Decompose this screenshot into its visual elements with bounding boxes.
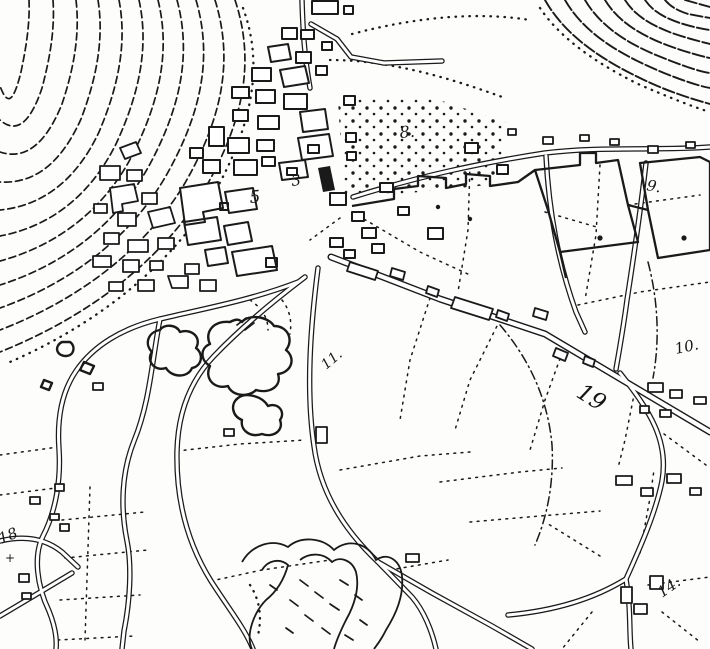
road-inner xyxy=(37,282,298,649)
rock-blob xyxy=(233,395,282,435)
ravine-hatching xyxy=(237,318,367,640)
enclosure-2 xyxy=(640,157,710,258)
road-coast xyxy=(37,282,298,649)
tree-dot xyxy=(468,217,472,221)
tree-dot xyxy=(597,235,602,240)
road-inner xyxy=(310,268,436,649)
tree-dot xyxy=(681,235,686,240)
cross-mark: + xyxy=(5,551,15,565)
ravine-outline xyxy=(242,539,402,649)
road-inner xyxy=(616,163,646,369)
road-bottom-right-w xyxy=(508,579,626,615)
ravine xyxy=(237,318,402,649)
road-right-1 xyxy=(546,156,585,332)
shoreline-contours-ne xyxy=(330,0,710,112)
map-canvas: 3 5 8. 9. 10. 11. 19 14. 18 + xyxy=(0,0,710,649)
parcel-label-11: 11. xyxy=(318,346,345,373)
dark-building xyxy=(318,166,335,192)
building-blocks-north xyxy=(209,1,356,160)
road-southwest xyxy=(177,277,305,649)
road-inner xyxy=(546,156,585,332)
road-inner xyxy=(508,579,626,615)
parcel-label-19: 19 xyxy=(572,379,611,417)
rock-outcrops xyxy=(41,317,292,435)
road-south xyxy=(310,268,436,649)
parcel-label-8: 8. xyxy=(399,122,416,142)
town-plan-map: 3 5 8. 9. 10. 11. 19 14. 18 + xyxy=(0,0,710,649)
contour-lines xyxy=(0,0,245,352)
contour-lines xyxy=(545,0,710,104)
parcel-label-18: 18 xyxy=(0,524,20,548)
parcel-label-10: 10. xyxy=(673,335,700,358)
parcel-label-5: 5 xyxy=(249,187,262,208)
tree-dot xyxy=(436,205,440,209)
parcel-label-9: 9. xyxy=(645,176,662,196)
orchard-dot-field xyxy=(338,97,506,198)
